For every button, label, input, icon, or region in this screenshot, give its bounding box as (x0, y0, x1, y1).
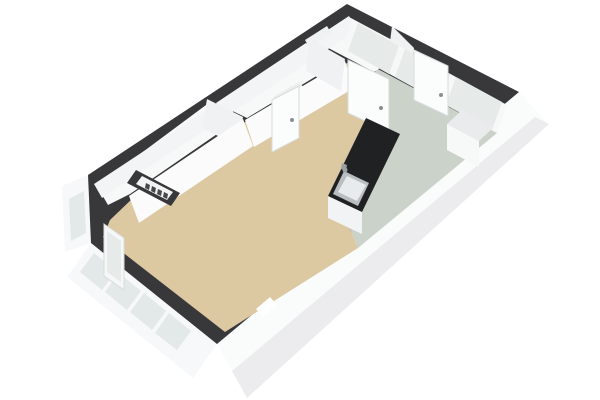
door-handle (290, 118, 294, 122)
faucet-head (343, 168, 348, 173)
floorplan-svg (0, 0, 600, 400)
floorplan-3d-view (0, 0, 600, 400)
door-handle (379, 106, 383, 110)
door-handle (439, 93, 443, 97)
facade-window-pane-left (69, 191, 86, 241)
